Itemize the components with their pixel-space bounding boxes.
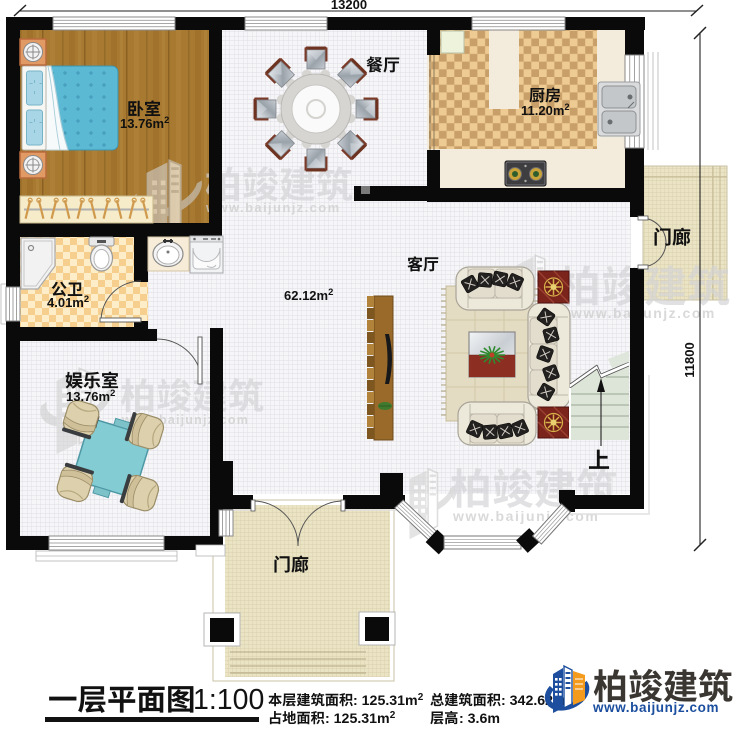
svg-text:13.76m2: 13.76m2: [120, 114, 169, 131]
svg-text:62.12m2: 62.12m2: [284, 286, 333, 303]
svg-text:: 125.31m2: : 125.31m2: [325, 710, 396, 727]
svg-text:11800: 11800: [682, 342, 697, 377]
svg-text:13200: 13200: [331, 0, 367, 12]
svg-text:1:100: 1:100: [193, 684, 264, 716]
svg-text:: 125.31m2: : 125.31m2: [353, 692, 424, 709]
svg-text:4.01m2: 4.01m2: [47, 293, 89, 310]
svg-text:www.baijunjz.com: www.baijunjz.com: [205, 200, 341, 215]
svg-text:www.baijunjz.com: www.baijunjz.com: [452, 508, 599, 524]
svg-text:: 3.6m: : 3.6m: [459, 711, 500, 727]
svg-text:11.20m2: 11.20m2: [521, 101, 570, 118]
svg-text:www.baijunjz.com: www.baijunjz.com: [592, 700, 719, 715]
svg-text:13.76m2: 13.76m2: [66, 387, 115, 404]
